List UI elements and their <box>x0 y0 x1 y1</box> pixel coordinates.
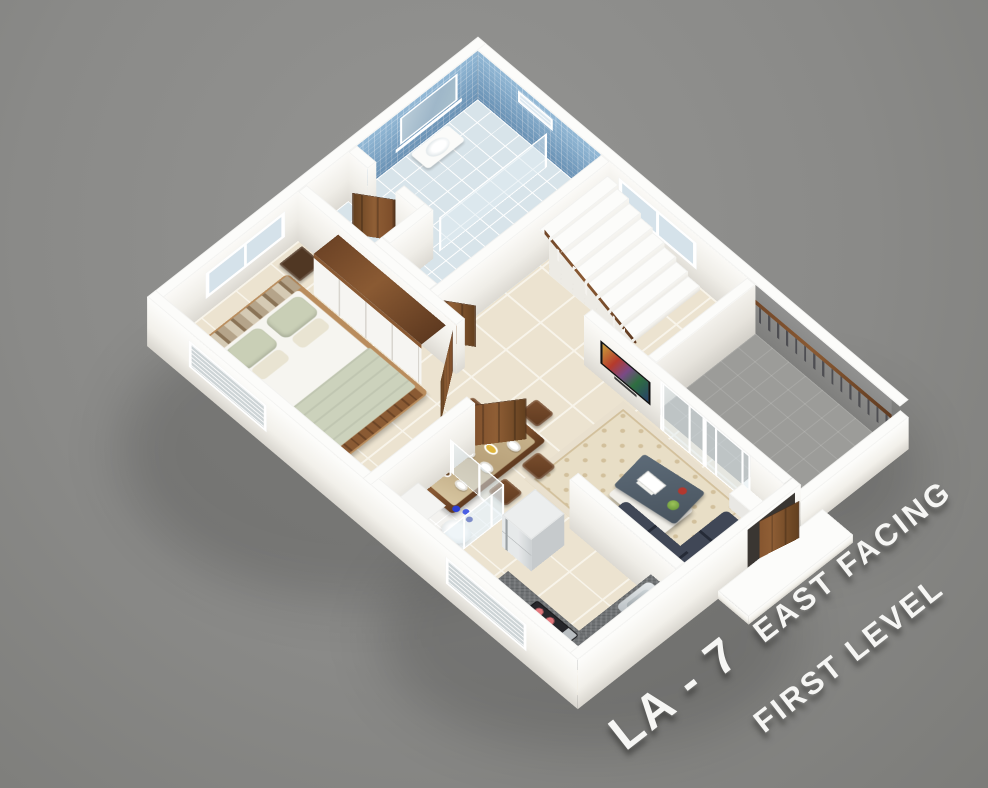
handrail-post <box>585 281 587 296</box>
bedroom-corridor-wall-end <box>456 319 465 375</box>
decor-red-bowl <box>676 486 689 496</box>
render-canvas: LA - 7 EAST FACING FIRST LEVEL <box>0 0 988 788</box>
magazine <box>637 471 667 495</box>
sliding-door-mullion <box>703 418 707 467</box>
handrail-post <box>557 249 559 262</box>
small-plant <box>665 498 682 512</box>
